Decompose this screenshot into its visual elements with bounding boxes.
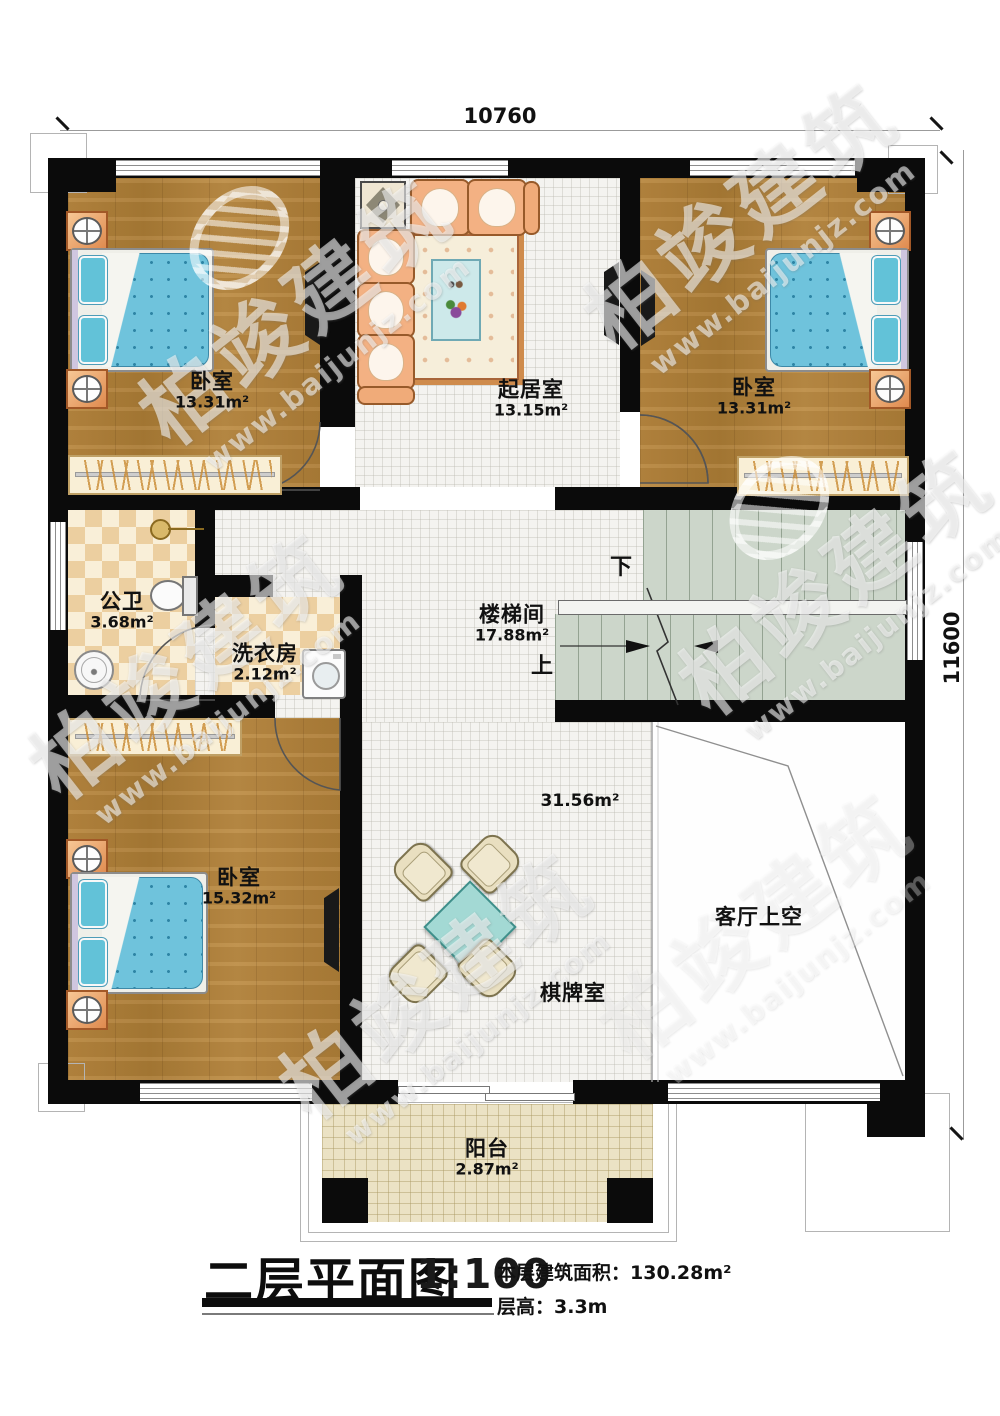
room-name: 阳台	[455, 1137, 518, 1161]
sink	[74, 650, 114, 690]
window-top-bedroom-tl	[116, 160, 320, 176]
room-name: 公卫	[90, 590, 153, 614]
shower-head	[150, 519, 171, 540]
balcony-sliding-door	[485, 1093, 575, 1101]
wall-below-bathroom	[48, 695, 275, 718]
floor-height-value: 3.3m	[554, 1296, 607, 1318]
game-room-area-label: 31.56m²	[541, 792, 620, 812]
room-area: 13.15m²	[494, 402, 568, 420]
sofa-seat	[467, 179, 527, 236]
bed-sheet	[102, 877, 158, 989]
pillow	[872, 256, 900, 304]
room-label-laundry: 洗衣房 2.12m²	[232, 642, 298, 685]
nightstand	[66, 211, 108, 251]
window-bottom-bedroom-bl	[140, 1083, 312, 1101]
room-area: 15.32m²	[202, 890, 276, 908]
sofa-armrest	[523, 181, 540, 235]
wall-bedroom-tl-living	[320, 158, 355, 427]
sofa-armrest	[357, 386, 415, 405]
nightstand	[66, 369, 108, 409]
corner-table	[360, 181, 406, 229]
floor-height-label: 层高：	[497, 1296, 554, 1318]
room-label-balcony: 阳台 2.87m²	[455, 1137, 518, 1180]
window-top-bedroom-tr	[690, 160, 855, 176]
floor-height-line: 层高：3.3m	[497, 1292, 607, 1319]
balcony-pier-left	[322, 1178, 368, 1223]
bed-sheet	[102, 253, 158, 367]
dimension-line-top	[60, 130, 940, 131]
toilet-tank	[182, 576, 198, 616]
pillow	[79, 880, 107, 928]
window-top-living	[392, 160, 508, 176]
window-right-stair	[907, 542, 923, 660]
wall-stair-bottom	[555, 700, 925, 722]
bed	[70, 872, 208, 994]
bed	[765, 248, 909, 372]
room-label-bathroom: 公卫 3.68m²	[90, 590, 153, 633]
stair-upper-flight	[643, 510, 905, 602]
room-area: 2.12m²	[232, 666, 298, 684]
room-label-void: 客厅上空	[715, 905, 803, 929]
sofa-seat	[357, 229, 415, 285]
pillow	[79, 316, 107, 364]
wall-bottom-center	[573, 1080, 658, 1104]
pillow	[79, 256, 107, 304]
room-area: 13.31m²	[717, 400, 791, 418]
stair-down-label: 下	[610, 549, 632, 581]
tv	[641, 270, 655, 346]
wall-bedroom-bl-right	[340, 718, 362, 1080]
dimension-tick	[949, 1126, 963, 1140]
floor-plan-canvas: 10760 11600	[0, 0, 1000, 1416]
coffee-table	[431, 259, 481, 341]
wardrobe	[68, 455, 282, 495]
nightstand	[869, 211, 911, 251]
room-label-living: 起居室 13.15m²	[494, 378, 568, 421]
stair-up-label: 上	[531, 648, 553, 680]
wardrobe	[68, 718, 242, 756]
tv	[324, 888, 339, 972]
room-name: 客厅上空	[715, 905, 803, 929]
sofa-seat	[410, 179, 470, 236]
room-label-bedroom-bl: 卧室 15.32m²	[202, 866, 276, 909]
dimension-width-label: 10760	[463, 104, 536, 128]
window-bottom-void	[668, 1083, 880, 1101]
room-area: 31.56m²	[541, 792, 620, 812]
dimension-height-label: 11600	[940, 611, 964, 684]
room-name: 楼梯间	[475, 603, 549, 627]
room-area: 17.88m²	[475, 627, 549, 645]
room-name: 卧室	[175, 370, 249, 394]
bed	[70, 248, 214, 372]
dimension-tick	[939, 150, 953, 164]
room-label-bedroom-tr: 卧室 13.31m²	[717, 376, 791, 419]
room-area: 13.31m²	[175, 394, 249, 412]
room-name: 卧室	[717, 376, 791, 400]
floor-area-label: 本层建筑面积：	[497, 1262, 630, 1284]
room-area: 3.68m²	[90, 614, 153, 632]
bed-sheet	[821, 253, 877, 367]
dimension-tick	[55, 116, 69, 130]
window-left-bathroom	[50, 522, 66, 630]
room-area: 2.87m²	[455, 1161, 518, 1179]
stair-landing	[793, 614, 905, 702]
pillow	[872, 316, 900, 364]
wardrobe	[737, 456, 909, 496]
room-label-game-room: 棋牌室	[540, 981, 606, 1005]
room-name: 棋牌室	[540, 981, 606, 1005]
floor-area-line: 本层建筑面积：130.28m²	[497, 1258, 731, 1285]
balcony-sliding-door	[398, 1086, 490, 1094]
room-label-bedroom-tl: 卧室 13.31m²	[175, 370, 249, 413]
wall-left	[48, 158, 68, 1103]
wall-living-bedroom-tr	[620, 158, 640, 412]
wall-laundry-top	[215, 575, 273, 597]
stair-lower-flight	[555, 614, 793, 702]
room-label-stairwell: 楼梯间 17.88m²	[475, 603, 549, 646]
balcony-pier-right	[607, 1178, 653, 1223]
void-area-floor	[652, 722, 905, 1080]
washing-machine	[302, 649, 346, 699]
sofa-seat	[357, 282, 415, 338]
room-name: 起居室	[494, 378, 568, 402]
room-name: 洗衣房	[232, 642, 298, 666]
pillow	[79, 938, 107, 986]
nightstand	[66, 990, 108, 1030]
toilet	[150, 580, 186, 611]
floor-area-value: 130.28m²	[630, 1262, 731, 1284]
title-rule-thin	[202, 1313, 494, 1315]
game-room-floor	[362, 722, 652, 1082]
title-rule-thick	[202, 1298, 492, 1307]
tv	[305, 262, 320, 345]
nightstand	[869, 369, 911, 409]
stair-handrail	[558, 600, 907, 615]
tv	[604, 262, 619, 345]
room-name: 卧室	[202, 866, 276, 890]
sofa-seat	[357, 334, 415, 390]
dimension-tick	[929, 116, 943, 130]
